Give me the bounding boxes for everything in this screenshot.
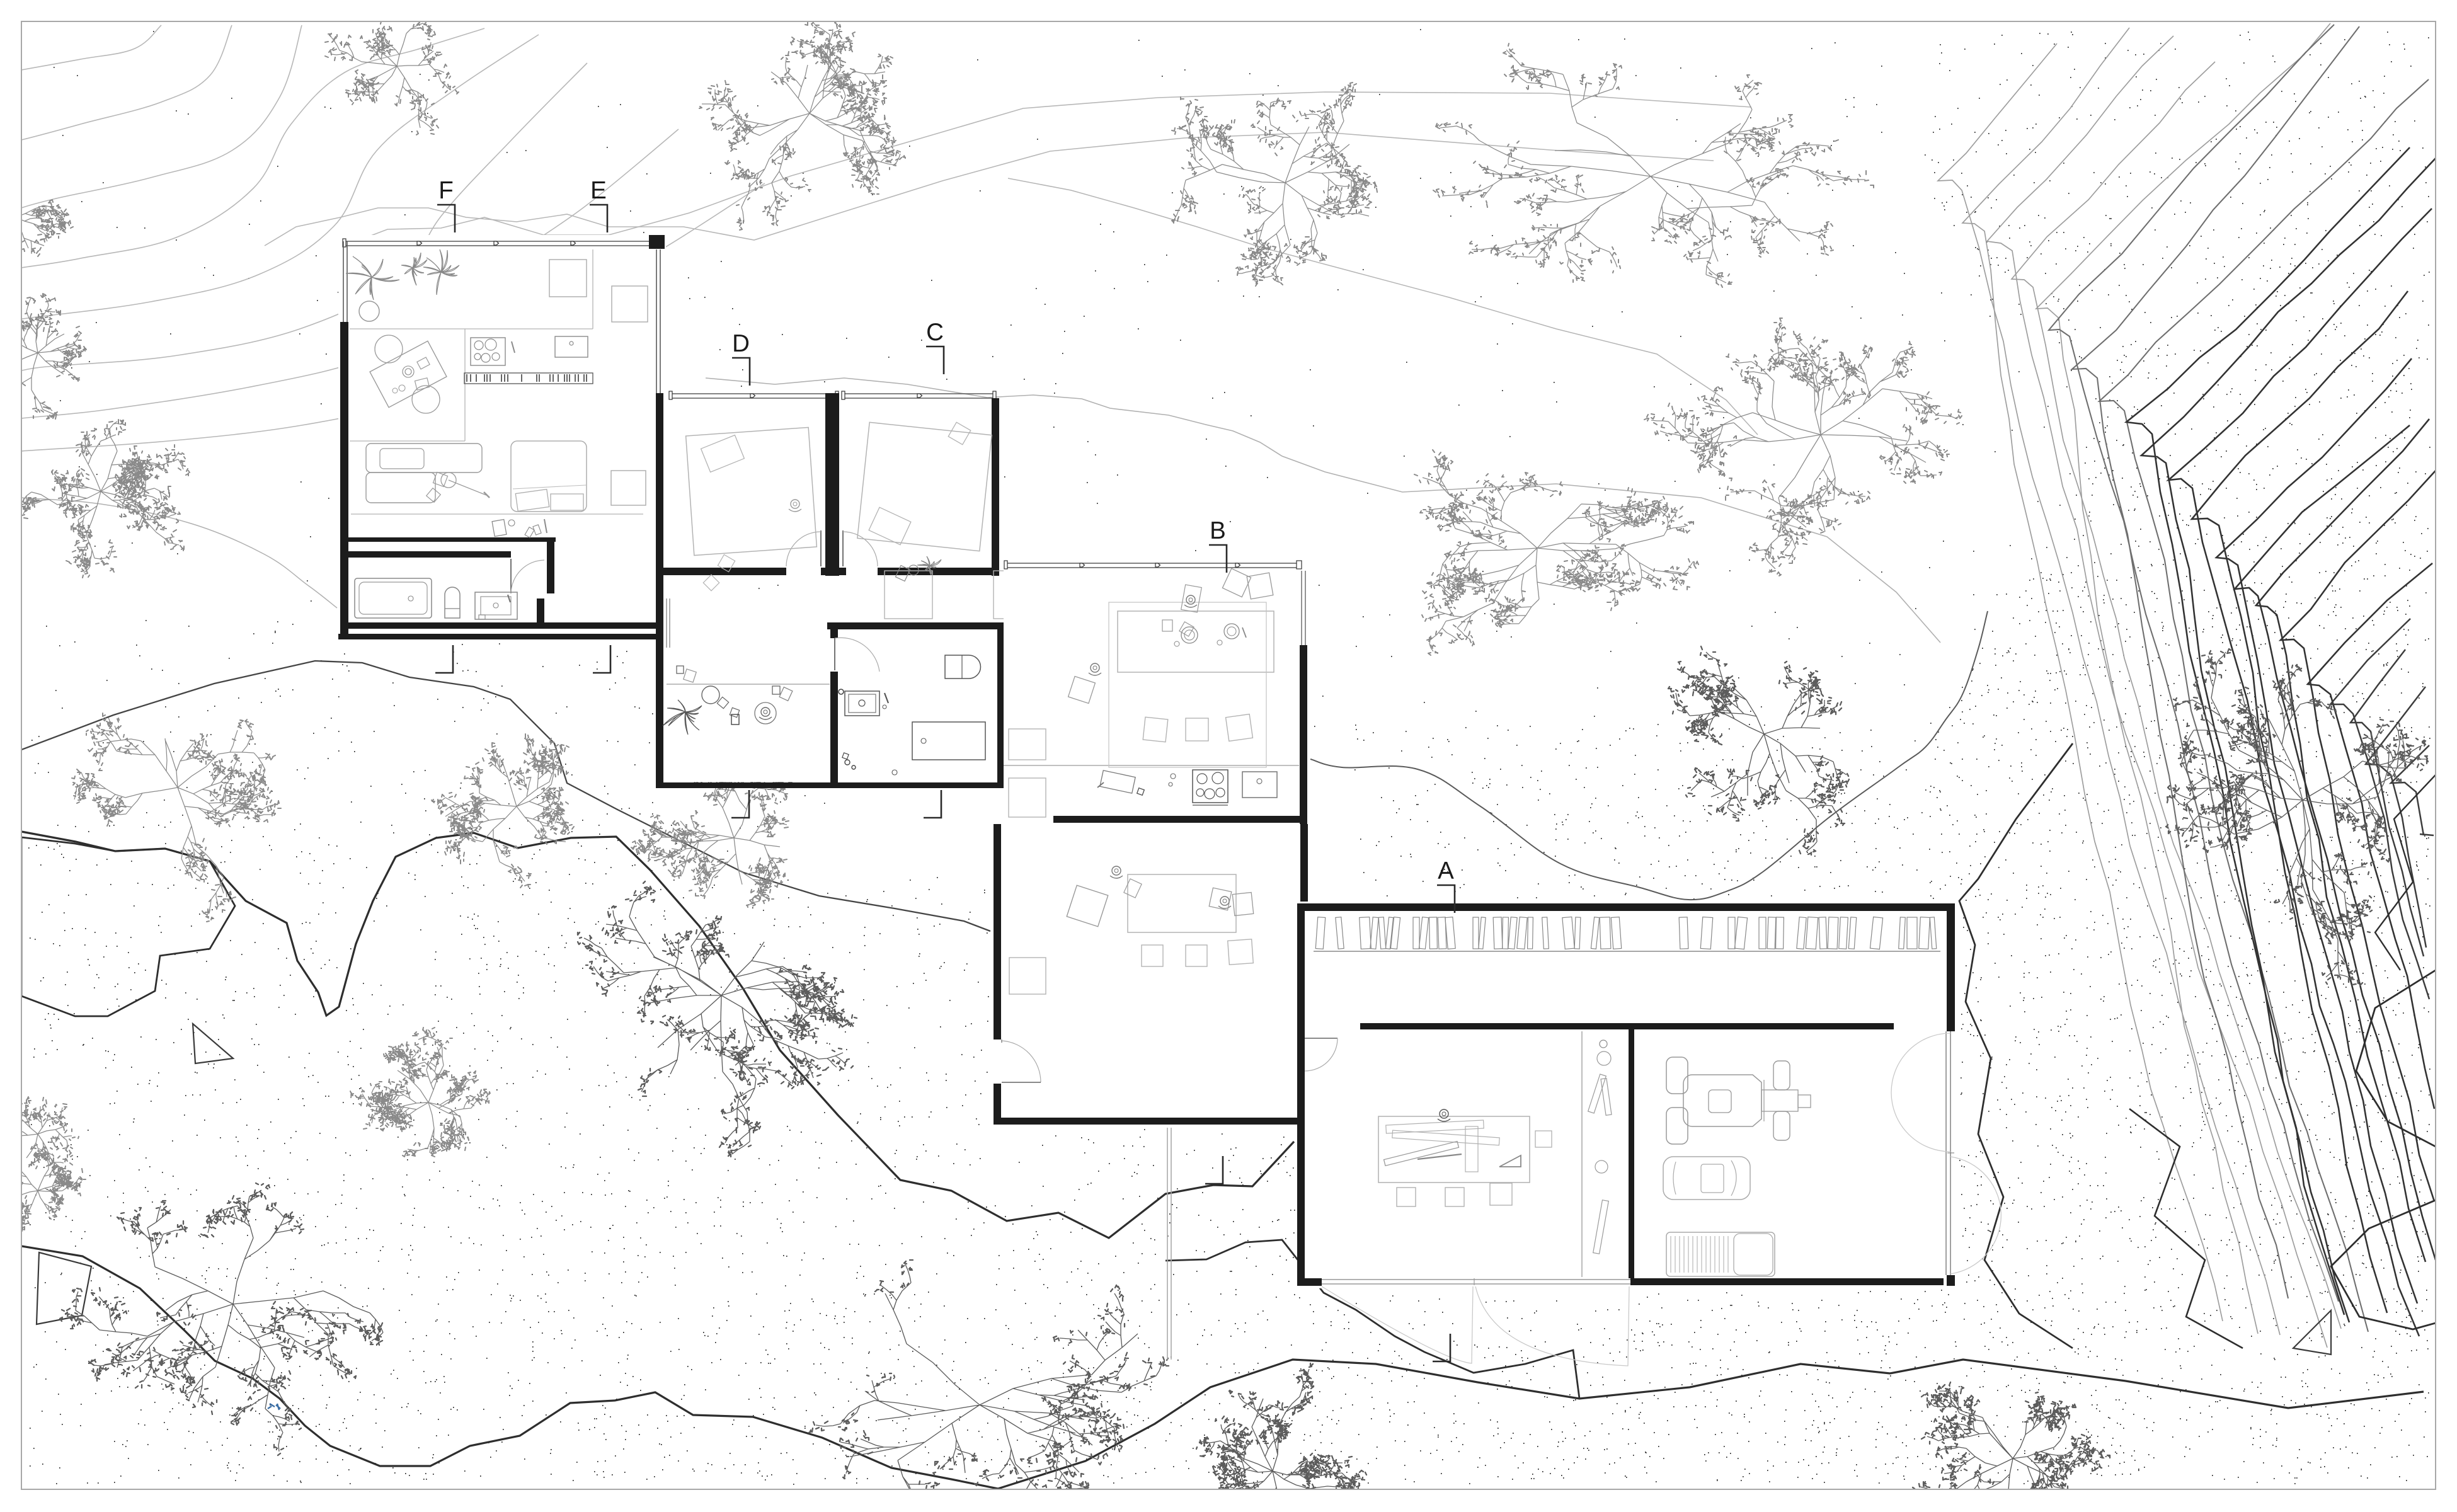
svg-text:B: B [1210,517,1226,544]
svg-text:D: D [732,330,750,357]
svg-text:A: A [1438,857,1454,885]
svg-text:C: C [926,319,944,346]
svg-text:E: E [590,177,607,204]
svg-text:F: F [438,177,454,204]
